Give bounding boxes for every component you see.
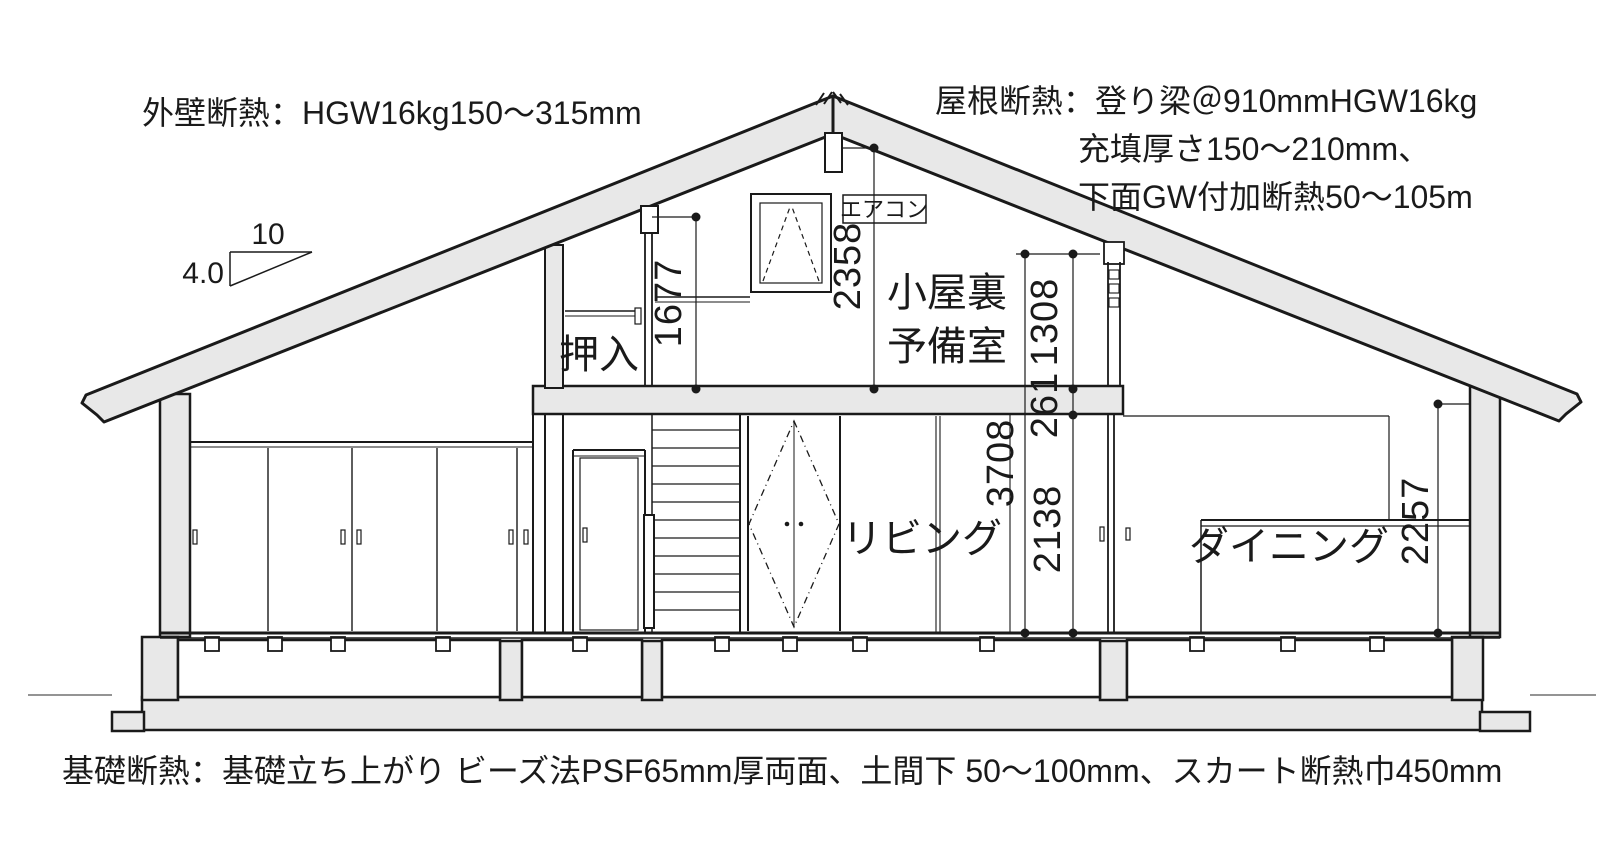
foundation-wall xyxy=(1452,637,1483,700)
living-dining-partition xyxy=(1100,414,1130,633)
note-roof-line3: 下面GW付加断熱50〜105m xyxy=(1078,179,1473,215)
foundation-step-right xyxy=(1480,712,1530,731)
label-dining: ダイニング xyxy=(1189,525,1389,569)
note-exterior-wall: 外壁断熱：HGW16kg150〜315mm xyxy=(142,95,642,131)
slope-rise-label: 4.0 xyxy=(182,257,224,290)
foundation-wall xyxy=(642,641,662,700)
label-attic-line2: 予備室 xyxy=(887,325,1007,369)
label-closet: 押入 xyxy=(559,333,639,377)
folding-door xyxy=(748,416,840,631)
section-canvas: エアコン 1677 2358 1308 261 3708 2138 2257 1… xyxy=(0,0,1600,856)
note-roof-line1: 屋根断熱：登り梁＠910mmHGW16kg xyxy=(935,83,1477,119)
loft-right-wall xyxy=(1104,242,1124,386)
dim-dining-wall-height: 2257 xyxy=(1395,477,1437,566)
dim-loft-floor-thickness: 261 xyxy=(1024,372,1066,438)
roof-slope-symbol xyxy=(230,252,312,286)
foundation xyxy=(28,637,1596,731)
foundation-wall xyxy=(142,637,178,700)
slope-run-label: 10 xyxy=(251,218,284,251)
right-wall-section xyxy=(1470,386,1500,637)
left-wall-section xyxy=(160,394,190,637)
label-living: リビング xyxy=(842,517,1002,561)
hall-door xyxy=(573,450,645,633)
note-foundation: 基礎断熱：基礎立ち上がり ビーズ法PSF65mm厚両面、土間下 50〜100mm… xyxy=(62,753,1502,789)
foundation-step-left xyxy=(112,712,144,731)
aircon-label-box: エアコン xyxy=(840,195,928,223)
aircon-label: エアコン xyxy=(840,197,928,222)
staircase xyxy=(644,415,740,633)
dim-loft-room-height: 1308 xyxy=(1024,278,1066,367)
architectural-section-drawing: エアコン 1677 2358 1308 261 3708 2138 2257 1… xyxy=(0,0,1600,856)
foundation-slab xyxy=(142,697,1482,730)
foundation-wall xyxy=(1100,641,1127,700)
dim-loft-wall-height: 1677 xyxy=(648,259,690,348)
closet-handles xyxy=(193,530,528,544)
label-attic-line1: 小屋裏 xyxy=(887,271,1007,315)
loft-window xyxy=(751,194,831,292)
dim-first-floor-ceiling: 2138 xyxy=(1027,485,1069,574)
dim-overall-inner-height: 3708 xyxy=(980,419,1022,508)
foundation-wall xyxy=(500,641,522,700)
note-roof-line2: 充填厚さ150〜210mm、 xyxy=(1078,131,1430,167)
ridge-beam-pocket xyxy=(825,133,842,172)
dim-loft-peak-height: 2358 xyxy=(827,222,869,311)
first-floor-interior xyxy=(190,414,1470,633)
